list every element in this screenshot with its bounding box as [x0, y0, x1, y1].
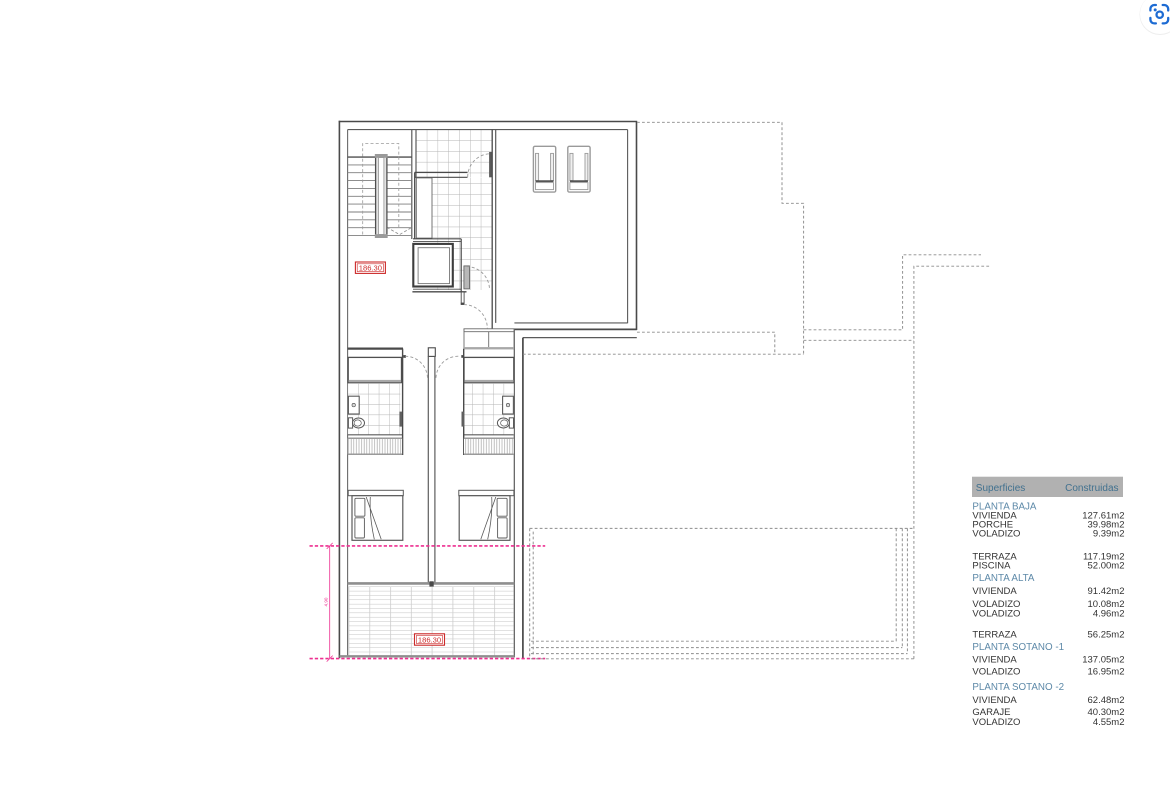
svg-text:VIVIENDA: VIVIENDA: [972, 695, 1017, 706]
svg-text:VOLADIZO: VOLADIZO: [972, 609, 1020, 620]
svg-text:186.30: 186.30: [418, 635, 441, 644]
svg-text:4.96m2: 4.96m2: [1093, 609, 1125, 620]
svg-text:52.00m2: 52.00m2: [1088, 561, 1125, 572]
svg-text:PISCINA: PISCINA: [972, 561, 1011, 572]
svg-text:PLANTA SOTANO -2: PLANTA SOTANO -2: [972, 682, 1064, 693]
svg-text:186.30: 186.30: [359, 264, 382, 273]
svg-text:4.90: 4.90: [324, 597, 329, 606]
svg-text:PLANTA ALTA: PLANTA ALTA: [972, 573, 1035, 584]
svg-text:PLANTA SOTANO -1: PLANTA SOTANO -1: [972, 642, 1064, 653]
svg-text:4.55m2: 4.55m2: [1093, 717, 1125, 728]
svg-text:VOLADIZO: VOLADIZO: [972, 528, 1020, 539]
svg-text:Superficies: Superficies: [976, 483, 1025, 494]
svg-text:16.95m2: 16.95m2: [1088, 667, 1125, 678]
svg-text:137.05m2: 137.05m2: [1082, 654, 1124, 665]
svg-text:VOLADIZO: VOLADIZO: [972, 667, 1020, 678]
svg-text:9.39m2: 9.39m2: [1093, 528, 1125, 539]
svg-text:VIVIENDA: VIVIENDA: [972, 586, 1017, 597]
svg-text:TERRAZA: TERRAZA: [972, 630, 1017, 641]
svg-text:56.25m2: 56.25m2: [1088, 630, 1125, 641]
svg-text:VOLADIZO: VOLADIZO: [972, 717, 1020, 728]
svg-text:VIVIENDA: VIVIENDA: [972, 654, 1017, 665]
svg-text:62.48m2: 62.48m2: [1088, 695, 1125, 706]
svg-text:Construidas: Construidas: [1065, 483, 1118, 494]
svg-text:91.42m2: 91.42m2: [1088, 586, 1125, 597]
